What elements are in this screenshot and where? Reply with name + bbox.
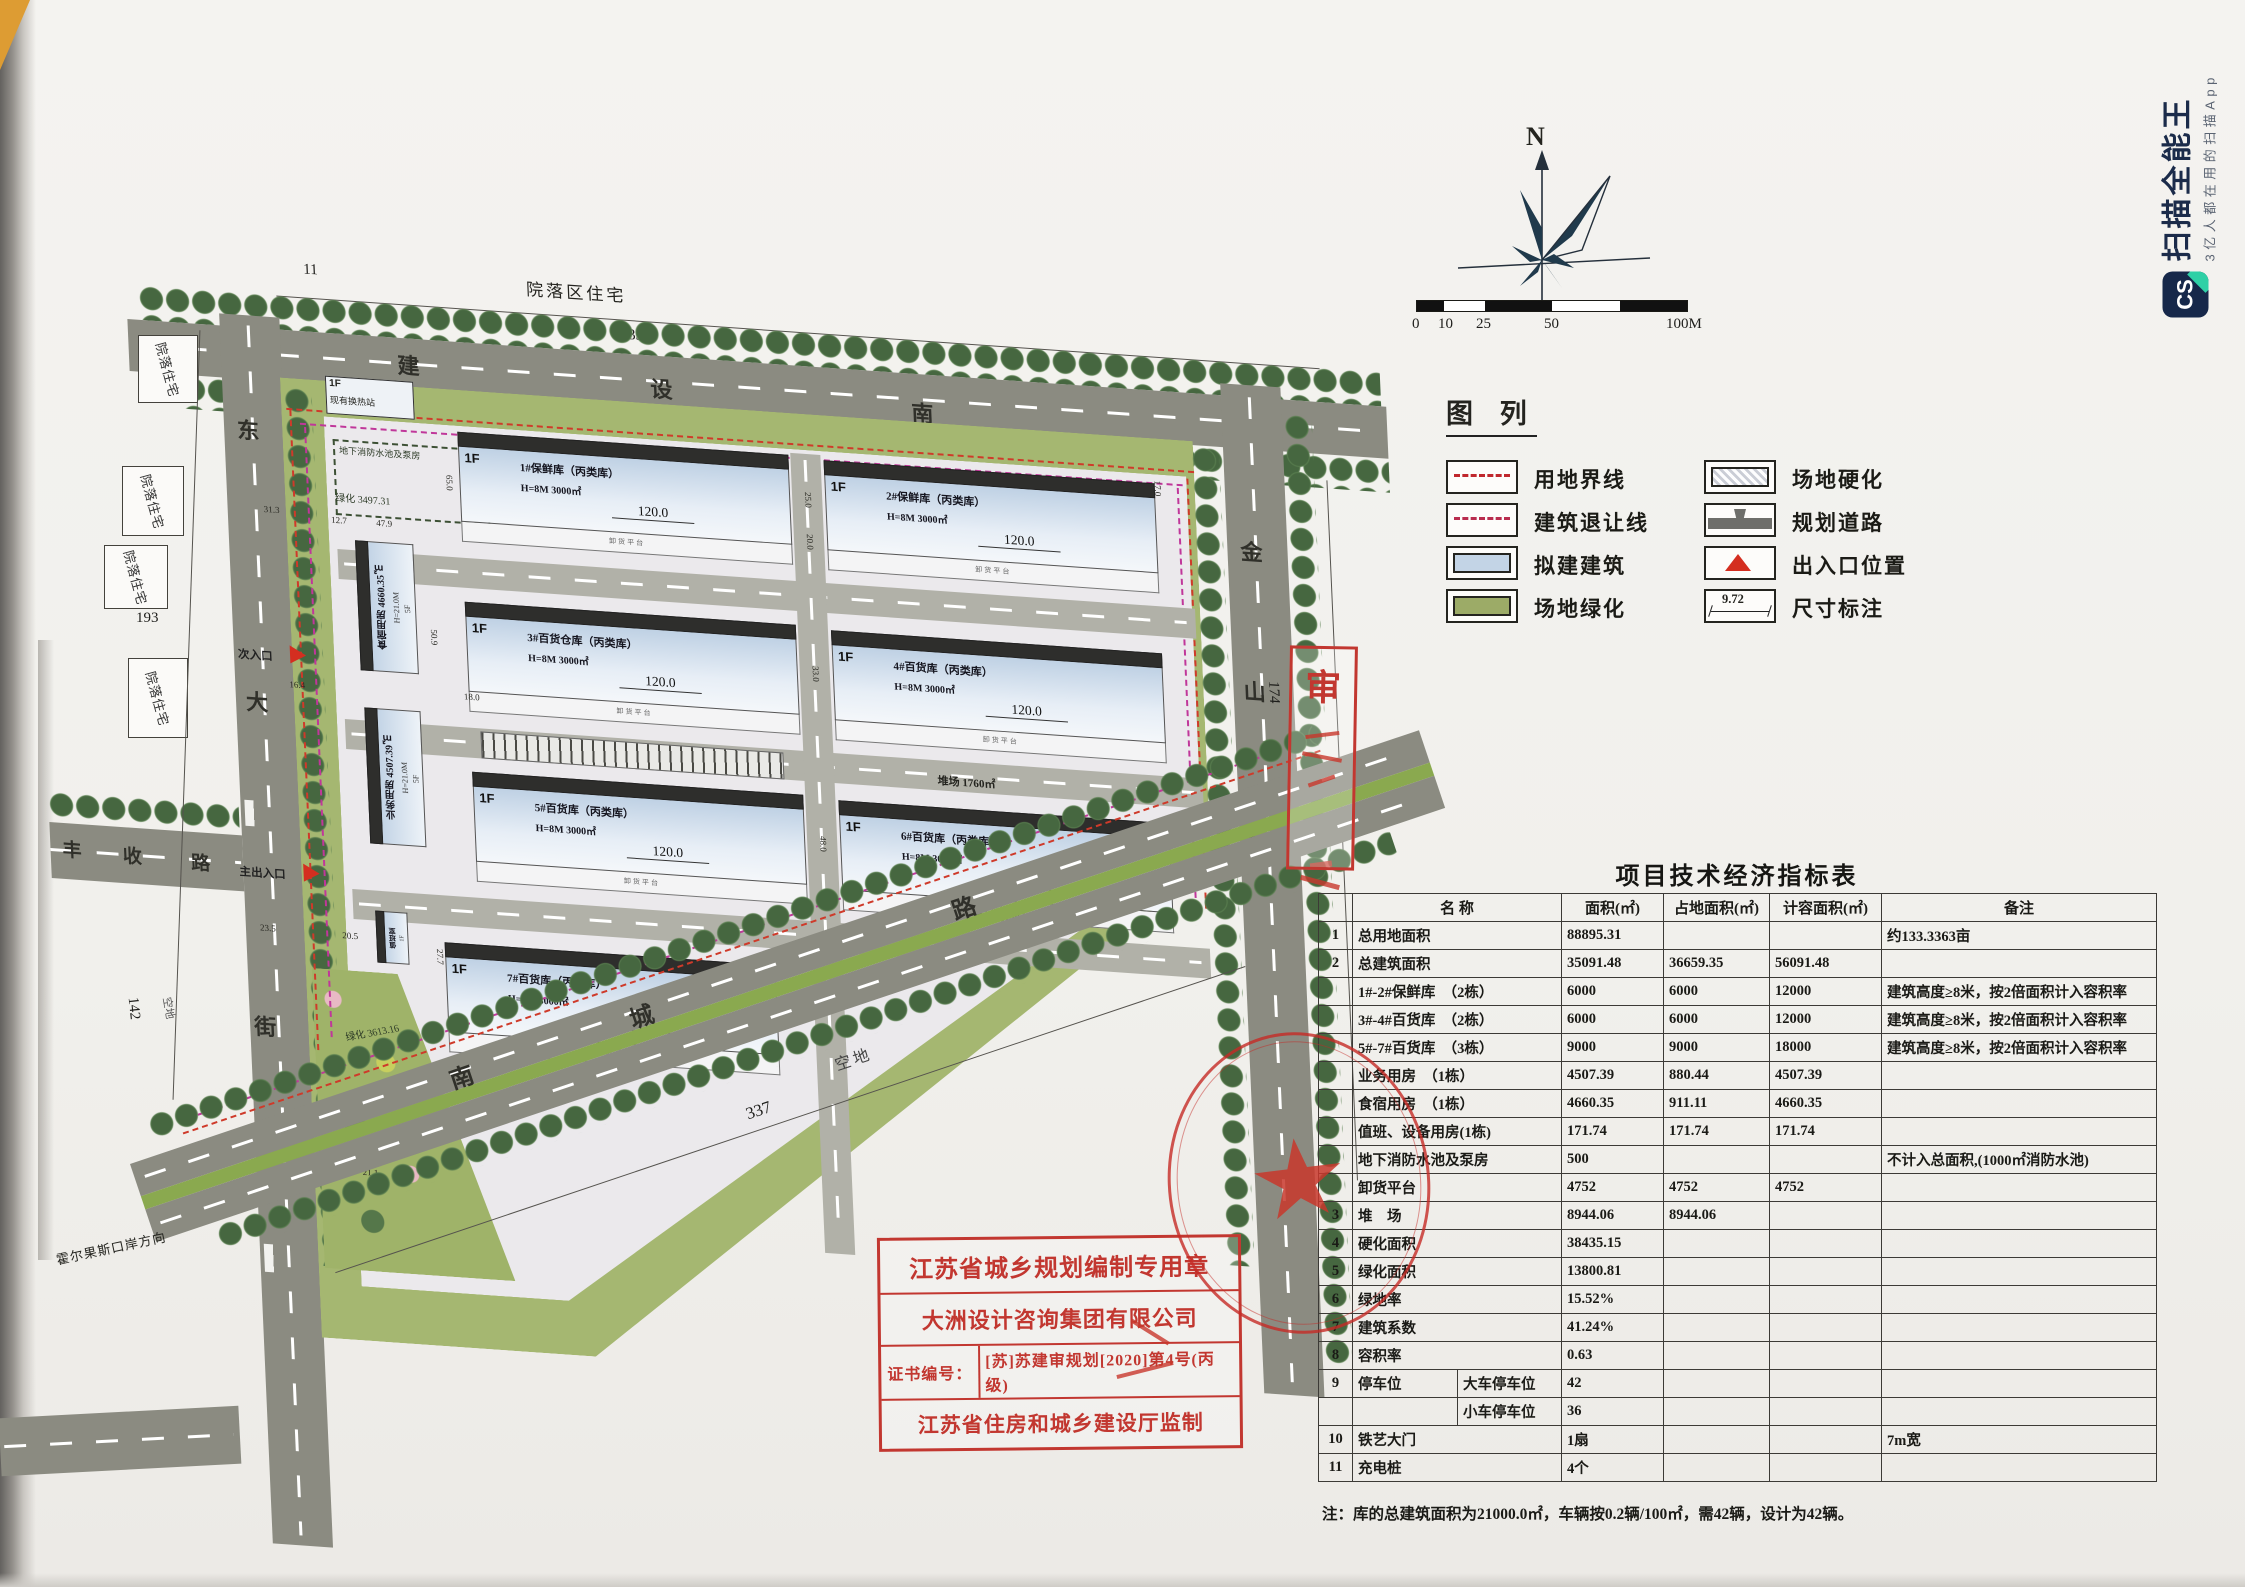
dim-174: 174 xyxy=(1264,680,1282,704)
scale-seg-3 xyxy=(1485,301,1552,311)
residence-box-3: 院落住宅 xyxy=(104,545,168,609)
table-row: 5绿化面积13800.81 xyxy=(1319,1258,2157,1286)
table-cell xyxy=(1664,1230,1770,1258)
table-cell: 880.44 xyxy=(1664,1062,1770,1090)
dormitory-floors: 5F xyxy=(402,604,411,613)
table-cell: 6000 xyxy=(1664,978,1770,1006)
table-cell xyxy=(1882,1370,2157,1398)
table-cell: 铁艺大门 xyxy=(1353,1426,1562,1454)
legend-swatch-green xyxy=(1446,589,1518,623)
table-cell xyxy=(1882,1118,2157,1146)
table-row: 11充电桩4个 xyxy=(1319,1454,2157,1482)
table-row: 6绿地率15.52% xyxy=(1319,1286,2157,1314)
legend-entrance-triangle xyxy=(1725,554,1751,571)
table-cell: 5#-7#百货库 （3栋） xyxy=(1353,1034,1562,1062)
camscanner-text-block: 扫描全能王 3亿人都在用的扫描App xyxy=(2152,73,2218,261)
bottom-left-road-dash xyxy=(4,1433,234,1448)
table-cell: 9000 xyxy=(1664,1034,1770,1062)
top-road-char-1: 建 xyxy=(397,348,422,382)
bottom-left-road xyxy=(0,1406,241,1476)
residence-box-1: 院落住宅 xyxy=(138,335,198,403)
north-label: N xyxy=(1526,122,1545,152)
dim-v-33: 33.0 xyxy=(811,666,822,682)
legend-boundary-line xyxy=(1454,474,1510,477)
fengshou-char-1: 丰 xyxy=(62,835,84,863)
scale-seg-5 xyxy=(1620,301,1687,311)
warehouse-5-name: 5#百货库（丙类库） xyxy=(534,799,634,822)
table-header-cell: 占地面积(㎡) xyxy=(1664,894,1770,922)
office-floors: 5F xyxy=(411,774,420,783)
table-cell: 建筑系数 xyxy=(1353,1314,1562,1342)
residence-label-4: 院落住宅 xyxy=(142,668,175,727)
table-cell xyxy=(1770,1398,1882,1426)
legend-dim-line xyxy=(1711,611,1769,612)
left-road-char-3: 街 xyxy=(253,1009,278,1043)
office-height: H=21.0M xyxy=(399,762,409,794)
legend-swatch-dim: 9.72 xyxy=(1704,589,1776,623)
legend-dim-tick-r xyxy=(1767,605,1772,617)
camscanner-subtitle: 3亿人都在用的扫描App xyxy=(2199,73,2218,261)
table-cell: 500 xyxy=(1562,1146,1664,1174)
table-header-cell: 面积(㎡) xyxy=(1562,894,1664,922)
table-row: 2总建筑面积35091.4836659.3556091.48 xyxy=(1319,950,2157,978)
table-cell: 0.63 xyxy=(1562,1342,1664,1370)
table-cell: 1#-2#保鲜库 （2栋） xyxy=(1353,978,1562,1006)
dormitory-building: 食宿用房 4660.35㎡ H=21.0M 5F xyxy=(355,540,419,674)
table-cell xyxy=(1319,1398,1353,1426)
table-cell xyxy=(1664,1370,1770,1398)
table-cell xyxy=(1664,1342,1770,1370)
table-cell xyxy=(1882,1314,2157,1342)
left-road-char-1: 东 xyxy=(236,412,261,446)
table-cell: 41.24% xyxy=(1562,1314,1664,1342)
legend-label-boundary: 用地界线 xyxy=(1534,464,1626,494)
warehouse-6-floor: 1F xyxy=(845,819,861,835)
warehouse-3-spec: H=8M 3000㎡ xyxy=(528,649,589,668)
review-stamp-box: 审 xyxy=(1286,645,1358,870)
table-cell: 38435.15 xyxy=(1562,1230,1664,1258)
dormitory-height: H=21.0M xyxy=(391,592,401,624)
table-cell: 8944.06 xyxy=(1562,1202,1664,1230)
warehouse-5-dim: 120.0 xyxy=(626,841,709,864)
dormitory-label: 食宿用房 4660.35㎡ xyxy=(373,564,392,650)
table-row: 卸货平台475247524752 xyxy=(1319,1174,2157,1202)
dim-s-127: 12.7 xyxy=(331,515,347,526)
compass-rose-icon xyxy=(1450,110,1670,310)
table-cell xyxy=(1882,1454,2157,1482)
legend-label-building: 拟建建筑 xyxy=(1534,550,1626,580)
table-cell: 3#-4#百货库 （2栋） xyxy=(1353,1006,1562,1034)
warehouse-5-spec: H=8M 3000㎡ xyxy=(535,819,596,838)
adjacent-area-label: 院落区住宅 xyxy=(525,275,626,307)
table-title: 项目技术经济指标表 xyxy=(1318,856,2156,891)
warehouse-4-floor: 1F xyxy=(838,649,854,665)
scale-50: 50 xyxy=(1544,316,1559,333)
office-building: 业务用房 4507.39㎡ H=21.0M 5F xyxy=(364,707,426,847)
legend-swatch-entrance xyxy=(1704,546,1776,580)
table-cell: 4752 xyxy=(1664,1174,1770,1202)
table-cell: 35091.48 xyxy=(1562,950,1664,978)
warehouse-2-name: 2#保鲜库（丙类库） xyxy=(886,488,986,511)
table-cell: 建筑高度≥8米，按2倍面积计入容积率 xyxy=(1882,1034,2157,1062)
table-row: 1总用地面积88895.31约133.3363亩 xyxy=(1319,922,2157,950)
camscanner-title: 扫描全能王 xyxy=(2152,73,2196,261)
table-cell: 充电桩 xyxy=(1353,1454,1562,1482)
indicator-table-body: 名 称面积(㎡)占地面积(㎡)计容面积(㎡)备注1总用地面积88895.31约1… xyxy=(1319,894,2157,1482)
table-cell xyxy=(1882,1258,2157,1286)
legend-road-bar xyxy=(1708,518,1772,529)
residence-box-2: 院落住宅 xyxy=(122,466,184,536)
residence-label-3: 院落住宅 xyxy=(120,547,153,606)
table-cell xyxy=(1770,1314,1882,1342)
table-cell xyxy=(1882,1062,2157,1090)
scale-10: 10 xyxy=(1438,316,1453,333)
table-cell: 171.74 xyxy=(1664,1118,1770,1146)
table-cell: 大车停车位 xyxy=(1458,1370,1562,1398)
legend-label-green: 场地绿化 xyxy=(1534,593,1626,623)
table-header-cell: 计容面积(㎡) xyxy=(1770,894,1882,922)
legend-swatch-setback xyxy=(1446,503,1518,537)
duty-room-floor: 1F xyxy=(399,935,405,942)
legend-title: 图 列 xyxy=(1446,392,1537,437)
table-cell: 8944.06 xyxy=(1664,1202,1770,1230)
warehouse-5: 1F 5#百货库（丙类库） H=8M 3000㎡ 120.0 卸货平台 xyxy=(472,772,808,905)
legend-label-harden: 场地硬化 xyxy=(1792,464,1884,494)
table-cell: 4个 xyxy=(1562,1454,1664,1482)
warehouse-4: 1F 4#百货库（丙类库） H=8M 3000㎡ 120.0 卸货平台 xyxy=(831,630,1167,763)
dim-193: 193 xyxy=(136,610,159,627)
table-cell xyxy=(1770,922,1882,950)
table-row: 3#-4#百货库 （2栋）6000600012000建筑高度≥8米，按2倍面积计… xyxy=(1319,1006,2157,1034)
warehouse-1-floor: 1F xyxy=(464,450,480,466)
legend-swatch-building xyxy=(1446,546,1518,580)
table-row: 1#-2#保鲜库 （2栋）6000600012000建筑高度≥8米，按2倍面积计… xyxy=(1319,978,2157,1006)
table-cell: 12000 xyxy=(1770,1006,1882,1034)
left-road-char-2: 大 xyxy=(245,684,270,718)
dim-11: 11 xyxy=(303,261,318,279)
table-header-cell: 名 称 xyxy=(1353,894,1562,922)
table-cell xyxy=(1664,1398,1770,1426)
table-cell xyxy=(1770,1426,1882,1454)
table-cell: 小车停车位 xyxy=(1458,1398,1562,1426)
table-cell xyxy=(1353,1398,1458,1426)
table-cell: 171.74 xyxy=(1770,1118,1882,1146)
warehouse-4-dim: 120.0 xyxy=(985,700,1068,723)
warehouse-3-floor: 1F xyxy=(472,620,488,636)
table-cell: 4507.39 xyxy=(1770,1062,1882,1090)
table-header-row: 名 称面积(㎡)占地面积(㎡)计容面积(㎡)备注 xyxy=(1319,894,2157,922)
table-cell: 4660.35 xyxy=(1770,1090,1882,1118)
table-cell xyxy=(1882,1342,2157,1370)
warehouse-2-spec: H=8M 3000㎡ xyxy=(887,508,948,527)
scale-25: 25 xyxy=(1476,316,1491,333)
legend-harden-fill xyxy=(1711,467,1769,487)
table-cell xyxy=(1664,1454,1770,1482)
dim-s-509: 50.9 xyxy=(429,629,440,645)
legend-label-setback: 建筑退让线 xyxy=(1534,507,1649,537)
warehouse-4-name: 4#百货库（丙类库） xyxy=(893,658,993,681)
fengshou-char-3: 路 xyxy=(190,848,212,876)
table-cell: 不计入总面积,(1000㎡消防水池) xyxy=(1882,1146,2157,1174)
table-cell: 6000 xyxy=(1562,1006,1664,1034)
heat-station-floor: 1F xyxy=(329,378,341,390)
north-arrow: N xyxy=(1450,110,1670,310)
warehouse-2-dim: 120.0 xyxy=(978,530,1061,553)
camscanner-logo-text: CS xyxy=(2172,279,2198,310)
scanned-site-plan-page: 院落区住宅 338 11 建 设 南 东 大 街 丰 收 路 xyxy=(0,0,2245,1587)
table-cell xyxy=(1664,1286,1770,1314)
table-cell: 4660.35 xyxy=(1562,1090,1664,1118)
table-cell xyxy=(1770,1454,1882,1482)
table-cell: 56091.48 xyxy=(1770,950,1882,978)
main-entrance-icon xyxy=(303,864,320,883)
table-row: 小车停车位36 xyxy=(1319,1398,2157,1426)
table-cell xyxy=(1319,1006,1353,1034)
table-cell: 2 xyxy=(1319,950,1353,978)
dim-s-479: 47.9 xyxy=(376,518,392,529)
table-cell xyxy=(1664,1314,1770,1342)
table-cell: 停车位 xyxy=(1353,1370,1458,1398)
table-row: 7建筑系数41.24% xyxy=(1319,1314,2157,1342)
dim-s-180: 18.0 xyxy=(464,691,480,702)
stamp-row-2: 大洲设计咨询集团有限公司 xyxy=(880,1291,1239,1347)
stamp-cert-label: 证书编号： xyxy=(881,1346,981,1399)
table-header-cell xyxy=(1319,894,1353,922)
table-cell: 约133.3363亩 xyxy=(1882,922,2157,950)
page-bottom-shadow xyxy=(0,1573,2245,1587)
warehouse-2-floor: 1F xyxy=(830,479,846,495)
table-cell: 171.74 xyxy=(1562,1118,1664,1146)
residence-label-1: 院落住宅 xyxy=(152,339,185,398)
table-row: 10铁艺大门1扇7m宽 xyxy=(1319,1426,2157,1454)
table-cell: 10 xyxy=(1319,1426,1353,1454)
scale-bar: 0 10 25 50 100M xyxy=(1416,300,1716,350)
duty-room-building: 值班室 1F xyxy=(375,911,409,965)
table-cell: 建筑高度≥8米，按2倍面积计入容积率 xyxy=(1882,978,2157,1006)
heat-station-label: 现有换热站 xyxy=(330,393,376,409)
table-cell: 容积率 xyxy=(1353,1342,1562,1370)
warehouse-3: 1F 3#百货仓库（丙类库） H=8M 3000㎡ 120.0 卸货平台 xyxy=(465,602,801,735)
warehouse-1: 1F 1#保鲜库（丙类库） H=8M 3000㎡ 120.0 卸货平台 xyxy=(457,432,793,565)
table-row: 9停车位大车停车位42 xyxy=(1319,1370,2157,1398)
camscanner-watermark: CS 扫描全能王 3亿人都在用的扫描App xyxy=(2138,18,2233,318)
table-cell: 11 xyxy=(1319,1454,1353,1482)
table-cell xyxy=(1770,1258,1882,1286)
table-cell xyxy=(1770,1146,1882,1174)
legend-label-road: 规划道路 xyxy=(1792,507,1884,537)
table-cell xyxy=(1882,1174,2157,1202)
legend-green-fill xyxy=(1453,596,1511,616)
warehouse-4-spec: H=8M 3000㎡ xyxy=(894,678,955,697)
table-cell xyxy=(1319,978,1353,1006)
scale-seg-1 xyxy=(1417,301,1444,311)
dim-s-313: 31.3 xyxy=(263,504,279,515)
table-cell: 36 xyxy=(1562,1398,1664,1426)
dim-v-17: 17.0 xyxy=(1152,480,1163,496)
table-cell: 7m宽 xyxy=(1882,1426,2157,1454)
warehouse-5-floor: 1F xyxy=(479,790,495,806)
top-road-char-2: 设 xyxy=(650,371,675,405)
legend-label-entrance: 出入口位置 xyxy=(1792,550,1907,580)
table-cell: 15.52% xyxy=(1562,1286,1664,1314)
dim-s-277: 27.7 xyxy=(435,949,446,965)
table-row: 3堆 场8944.068944.06 xyxy=(1319,1202,2157,1230)
review-scribble-3 xyxy=(1308,775,1336,788)
table-cell: 4507.39 xyxy=(1562,1062,1664,1090)
main-entrance-label: 主出入口 xyxy=(239,863,286,882)
dim-v-25: 25.0 xyxy=(803,492,814,508)
table-cell: 8 xyxy=(1319,1342,1353,1370)
table-cell: 9 xyxy=(1319,1370,1353,1398)
table-cell xyxy=(1882,1398,2157,1426)
table-cell: 6000 xyxy=(1562,978,1664,1006)
stamp-cert-value: [苏]苏建审规划[2020]第4号(丙级) xyxy=(980,1345,1239,1396)
legend: 图 列 用地界线 建筑退让线 拟建建筑 场地绿化 场地硬化 规划道路 出入口位置… xyxy=(1446,392,2006,662)
dim-s-650: 65.0 xyxy=(444,475,455,491)
table-cell: 4752 xyxy=(1562,1174,1664,1202)
legend-swatch-harden xyxy=(1704,460,1776,494)
residence-box-4: 院落住宅 xyxy=(128,658,188,738)
right-road-char-1: 金 xyxy=(1240,534,1265,568)
dim-142: 142 xyxy=(124,996,143,1020)
certification-stamp-box: 江苏省城乡规划编制专用章 大洲设计咨询集团有限公司 证书编号： [苏]苏建审规划… xyxy=(877,1234,1243,1452)
table-cell: 18000 xyxy=(1770,1034,1882,1062)
table-cell: 总用地面积 xyxy=(1353,922,1562,950)
table-cell: 6000 xyxy=(1664,1006,1770,1034)
table-row: 4硬化面积38435.15 xyxy=(1319,1230,2157,1258)
legend-setback-line xyxy=(1454,517,1510,520)
review-scribble-2 xyxy=(1302,751,1342,763)
table-cell: 42 xyxy=(1562,1370,1664,1398)
table-cell xyxy=(1664,1258,1770,1286)
scale-100: 100M xyxy=(1666,316,1702,333)
residence-label-2: 院落住宅 xyxy=(137,471,170,530)
table-row: 食宿用房 （1栋）4660.35911.114660.35 xyxy=(1319,1090,2157,1118)
camscanner-logo-icon: CS xyxy=(2162,272,2208,318)
warehouse-2: 1F 2#保鲜库（丙类库） H=8M 3000㎡ 120.0 卸货平台 xyxy=(824,460,1160,593)
dormitory-body: 食宿用房 4660.35㎡ H=21.0M 5F xyxy=(368,541,419,674)
dim-s-164: 16.4 xyxy=(289,679,305,690)
table-cell: 13800.81 xyxy=(1562,1258,1664,1286)
table-row: 8容积率0.63 xyxy=(1319,1342,2157,1370)
crosswalk-1 xyxy=(244,800,297,830)
table-cell xyxy=(1770,1370,1882,1398)
table-cell: 911.11 xyxy=(1664,1090,1770,1118)
table-row: 地下消防水池及泵房500不计入总面积,(1000㎡消防水池) xyxy=(1319,1146,2157,1174)
scale-bar-segments xyxy=(1416,300,1688,312)
legend-swatch-boundary xyxy=(1446,460,1518,494)
table-cell: 1 xyxy=(1319,922,1353,950)
heat-station-building: 1F 现有换热站 xyxy=(325,376,415,420)
table-cell xyxy=(1664,1426,1770,1454)
table-row: 业务用房 （1栋）4507.39880.444507.39 xyxy=(1319,1062,2157,1090)
scale-seg-4 xyxy=(1552,301,1620,311)
table-cell xyxy=(1770,1342,1882,1370)
table-cell: 36659.35 xyxy=(1664,950,1770,978)
crosswalk-2 xyxy=(264,1244,317,1276)
table-cell xyxy=(1882,1230,2157,1258)
table-header-cell: 备注 xyxy=(1882,894,2157,922)
warehouse-7-floor: 1F xyxy=(451,961,467,977)
table-cell xyxy=(1664,1146,1770,1174)
stamp-row-3: 证书编号： [苏]苏建审规划[2020]第4号(丙级) xyxy=(881,1343,1240,1401)
table-cell: 12000 xyxy=(1770,978,1882,1006)
table-cell xyxy=(1770,1230,1882,1258)
legend-swatch-road xyxy=(1704,503,1776,537)
scale-0: 0 xyxy=(1412,316,1420,333)
table-cell xyxy=(1882,1202,2157,1230)
table-row: 值班、设备用房(1栋)171.74171.74171.74 xyxy=(1319,1118,2157,1146)
table-cell: 88895.31 xyxy=(1562,922,1664,950)
duty-room-body: 值班室 1F xyxy=(384,911,409,965)
legend-dim-value: 9.72 xyxy=(1722,592,1744,607)
dim-s-235: 23.5 xyxy=(260,922,276,933)
dim-s-205: 20.5 xyxy=(342,930,358,941)
table-cell xyxy=(1882,1286,2157,1314)
table-cell: 总建筑面积 xyxy=(1353,950,1562,978)
duty-room-label: 值班室 xyxy=(387,927,398,949)
table-cell xyxy=(1664,922,1770,950)
scale-seg-2 xyxy=(1444,301,1485,311)
dim-v-20: 20.0 xyxy=(805,534,816,550)
warehouse-1-spec: H=8M 3000㎡ xyxy=(520,479,581,498)
legend-building-fill xyxy=(1453,553,1511,573)
table-cell: 建筑高度≥8米，按2倍面积计入容积率 xyxy=(1882,1006,2157,1034)
table-cell: 1扇 xyxy=(1562,1426,1664,1454)
warehouse-1-name: 1#保鲜库（丙类库） xyxy=(519,459,619,482)
dim-v-48: 48.0 xyxy=(818,836,829,852)
table-cell xyxy=(1770,1286,1882,1314)
fengshou-char-2: 收 xyxy=(122,841,144,869)
indicator-table: 名 称面积(㎡)占地面积(㎡)计容面积(㎡)备注1总用地面积88895.31约1… xyxy=(1318,893,2157,1482)
secondary-entrance-icon xyxy=(290,645,307,664)
review-scribble-1 xyxy=(1305,731,1339,739)
table-cell xyxy=(1882,950,2157,978)
legend-label-dim: 尺寸标注 xyxy=(1792,593,1884,623)
table-cell xyxy=(1770,1202,1882,1230)
review-stamp-char: 审 xyxy=(1305,659,1342,712)
table-cell: 4752 xyxy=(1770,1174,1882,1202)
secondary-entrance-label: 次入口 xyxy=(238,646,273,664)
warehouse-1-dim: 120.0 xyxy=(611,501,694,524)
table-cell: 9000 xyxy=(1562,1034,1664,1062)
warehouse-3-dim: 120.0 xyxy=(619,671,702,694)
table-row: 5#-7#百货库 （3栋）9000900018000建筑高度≥8米，按2倍面积计… xyxy=(1319,1034,2157,1062)
office-body: 业务用房 4507.39㎡ H=21.0M 5F xyxy=(377,708,426,847)
office-label: 业务用房 4507.39㎡ xyxy=(381,734,400,820)
table-note: 注：库的总建筑面积为21000.0㎡，车辆按0.2辆/100㎡，需42辆，设计为… xyxy=(1322,1502,2222,1524)
stamp-row-4: 江苏省住房和城乡建设厅监制 xyxy=(882,1397,1240,1449)
table-cell xyxy=(1882,1090,2157,1118)
